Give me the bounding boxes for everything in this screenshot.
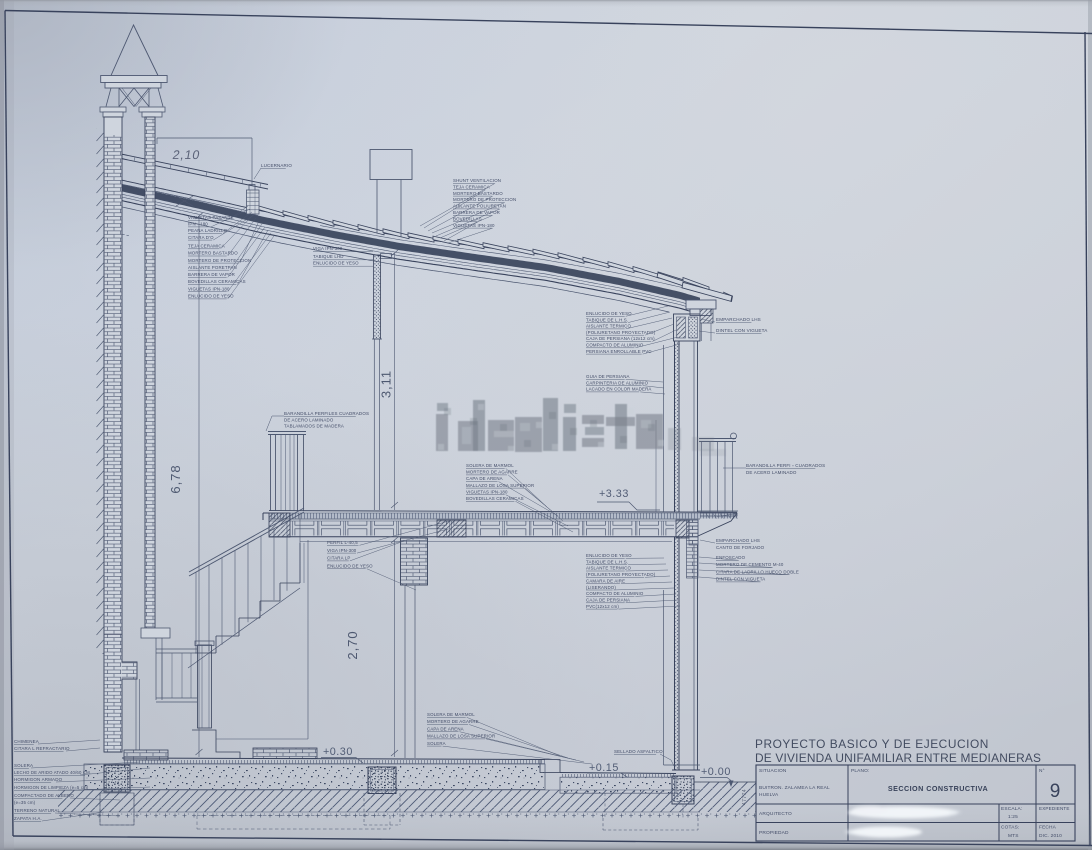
svg-text:COMPACTO DE ALUMINIO: COMPACTO DE ALUMINIO [586,591,644,596]
svg-text:2,10: 2,10 [171,148,201,162]
svg-text:3,11: 3,11 [379,370,394,398]
svg-text:MORTERO BASTARDO: MORTERO BASTARDO [453,191,503,196]
svg-text:TABLAMADOS DE MADERA: TABLAMADOS DE MADERA [284,424,344,429]
svg-text:BUITRON. ZALAMEA LA REAL: BUITRON. ZALAMEA LA REAL [759,785,830,791]
svg-text:47774: 47774 [742,789,748,805]
svg-text:SELLADO ASFALTICO: SELLADO ASFALTICO [614,749,663,754]
svg-text:BARRERA DE VAPOR: BARRERA DE VAPOR [188,272,235,277]
svg-text:VIGA IPN-300: VIGA IPN-300 [327,548,357,553]
svg-text:VIGUETAS IPN-180: VIGUETAS IPN-180 [188,286,230,291]
svg-text:VIGUETAS PASANTE: VIGUETAS PASANTE [188,215,234,220]
svg-text:PEANA LADRILLO: PEANA LADRILLO [188,228,228,233]
svg-text:HUELVA: HUELVA [759,792,779,798]
svg-text:EXPEDIENTE: EXPEDIENTE [1039,806,1070,811]
svg-text:DINTEL CON VIGUETA: DINTEL CON VIGUETA [716,328,768,333]
svg-text:(POLIURETANO PROYECTADO): (POLIURETANO PROYECTADO) [586,572,656,577]
svg-text:GUIA DE PERSIANA: GUIA DE PERSIANA [586,374,630,379]
svg-text:N°: N° [1039,768,1045,774]
svg-text:(e=35 cm): (e=35 cm) [14,800,36,805]
svg-text:BARANDILLA PERFI ▫ CUADRADOS: BARANDILLA PERFI ▫ CUADRADOS [746,463,825,468]
svg-text:TABIQUE DE L.H.S.: TABIQUE DE L.H.S. [586,559,628,564]
svg-text:MORTERO DE AGARRE: MORTERO DE AGARRE [466,470,518,475]
svg-text:CAPA DE ARENA: CAPA DE ARENA [427,726,464,731]
svg-text:SECCION CONSTRUCTIVA: SECCION CONSTRUCTIVA [888,784,988,793]
svg-text:VIGUETAS IPN-180: VIGUETAS IPN-180 [453,223,495,228]
svg-text:BARANDILLA PERFILES CUADRADOS: BARANDILLA PERFILES CUADRADOS [284,411,369,416]
svg-text:PLANO:: PLANO: [851,768,870,774]
svg-text:(LISERANDO): (LISERANDO) [586,585,616,590]
svg-text:LECHO DE ARIDO ATADO 40/60 CM.: LECHO DE ARIDO ATADO 40/60 CM. [14,770,91,775]
svg-text:TEJA CERAMICA: TEJA CERAMICA [188,244,225,249]
svg-text:AISLANTE TERMICO: AISLANTE TERMICO [586,566,631,571]
svg-text:COMPACTADO DE ALBERO: COMPACTADO DE ALBERO [14,793,74,798]
svg-text:CAJA DE PERSIANA (12x12 cm): CAJA DE PERSIANA (12x12 cm) [586,336,655,341]
svg-text:BOVEDILLAS CERAMICAS: BOVEDILLAS CERAMICAS [188,279,246,284]
svg-text:+3.33: +3.33 [599,488,629,500]
svg-text:CITARA D'O: CITARA D'O [188,235,214,240]
svg-text:COTAS:: COTAS: [1001,825,1019,831]
svg-text:ARQUITECTO: ARQUITECTO [759,811,792,817]
svg-text:MORTERO BASTARDO: MORTERO BASTARDO [188,251,238,256]
svg-text:ENLUCIDO DE YESO: ENLUCIDO DE YESO [586,311,632,316]
svg-text:+0.30: +0.30 [323,746,353,758]
svg-text:CAMARA DE AIRE: CAMARA DE AIRE [586,578,625,583]
svg-text:HORMIGON DE LIMPIEZA (e=5 cm): HORMIGON DE LIMPIEZA (e=5 cm) [14,785,89,790]
svg-text:+0.15: +0.15 [589,762,619,774]
svg-text:ENLUCIDO DE YESO: ENLUCIDO DE YESO [327,563,373,568]
svg-text:SHUNT VENTILACION: SHUNT VENTILACION [453,178,501,183]
svg-text:SOLERA: SOLERA [14,763,33,768]
svg-text:HORMIGON ARMADO: HORMIGON ARMADO [14,777,63,782]
svg-text:DE ACERO LAMINADO: DE ACERO LAMINADO [284,418,334,423]
svg-text:VIGA IPN-300: VIGA IPN-300 [313,246,343,251]
svg-text:FECHA: FECHA [1039,825,1057,831]
svg-text:IPN - 180: IPN - 180 [188,222,208,227]
svg-text:ZAPATA H.A.: ZAPATA H.A. [14,816,42,821]
svg-text:CAJA DE PERSIANA: CAJA DE PERSIANA [586,598,630,603]
svg-text:PROYECTO BASICO Y DE EJECUCION: PROYECTO BASICO Y DE EJECUCION [755,737,989,751]
svg-text:ENLUCIDO DE YESO: ENLUCIDO DE YESO [313,261,359,266]
svg-text:COMPACTO DE ALUMINIO: COMPACTO DE ALUMINIO [586,343,644,348]
svg-text:ENFOSCADO: ENFOSCADO [716,555,746,560]
svg-text:LACADO EN COLOR MADERA: LACADO EN COLOR MADERA [586,387,652,392]
svg-text:TABIQUE LHD: TABIQUE LHD [313,254,344,259]
svg-text:6,78: 6,78 [168,464,183,493]
svg-text:AISLANTE TERMICO: AISLANTE TERMICO [586,324,631,329]
svg-text:AISLANTE PORETPAN: AISLANTE PORETPAN [188,265,237,270]
svg-text:(POLIURETANO PROYECTADO): (POLIURETANO PROYECTADO) [586,330,656,335]
svg-text:CITARA LP: CITARA LP [327,556,350,561]
svg-text:SOLERA DE MARMOL: SOLERA DE MARMOL [427,712,475,717]
svg-text:SOLERA: SOLERA [427,741,446,746]
svg-text:MORTERO DE AGARRE: MORTERO DE AGARRE [427,719,479,724]
svg-text:BOVEDILLAS: BOVEDILLAS [453,216,482,221]
svg-text:PROPIEDAD: PROPIEDAD [759,830,789,836]
svg-text:EMPARCHADO LHS: EMPARCHADO LHS [716,538,760,543]
svg-text:9: 9 [1050,781,1061,802]
svg-text:TABIQUE DE L.H.S.: TABIQUE DE L.H.S. [586,317,628,322]
svg-text:BARRERA DE VAPOR: BARRERA DE VAPOR [453,210,500,215]
svg-text:MORTERO DE PROTECCION: MORTERO DE PROTECCION [453,197,516,202]
svg-text:BOVEDILLAS CERAMICAS: BOVEDILLAS CERAMICAS [466,496,524,501]
svg-text:DE ACERO LAMINADO: DE ACERO LAMINADO [746,470,797,475]
svg-text:+0.00: +0.00 [701,766,731,778]
svg-text:EMPARCHADO LHS: EMPARCHADO LHS [716,317,761,322]
svg-text:SITUACION: SITUACION [759,768,787,774]
svg-text:DIC. 2010: DIC. 2010 [1039,833,1062,839]
svg-text:PERSIANA ENROLLABLE PVC: PERSIANA ENROLLABLE PVC [586,349,652,354]
svg-text:ENLUCIDO DE YESO: ENLUCIDO DE YESO [586,553,632,558]
svg-text:CARPINTERIA DE ALUMINIO: CARPINTERIA DE ALUMINIO [586,380,649,385]
svg-text:CITARA DE LADRILLO HUECO DOBLE: CITARA DE LADRILLO HUECO DOBLE [716,569,799,574]
svg-text:VIGUETAS IPN-180: VIGUETAS IPN-180 [466,489,508,494]
svg-text:2,70: 2,70 [345,630,360,659]
svg-text:CAPA DE ARENA: CAPA DE ARENA [466,476,503,481]
svg-text:TEJA CERAMICA: TEJA CERAMICA [453,184,490,189]
svg-text:CITARA L REFRACTARIO: CITARA L REFRACTARIO [14,746,70,751]
svg-text:CHIMENEA: CHIMENEA [14,739,39,744]
svg-text:LUCERNARIO: LUCERNARIO [261,163,292,168]
svg-text:ESCALA:: ESCALA: [1001,806,1022,812]
svg-text:MALLAZO DE LOSA SUPERIOR: MALLAZO DE LOSA SUPERIOR [466,483,534,488]
svg-text:AISLANTE POLIURETAN: AISLANTE POLIURETAN [453,204,506,209]
svg-text:SOLERA DE MARMOL: SOLERA DE MARMOL [466,463,514,468]
svg-text:DE VIVIENDA UNIFAMILIAR ENTRE: DE VIVIENDA UNIFAMILIAR ENTRE MEDIANERAS [755,751,1041,765]
svg-text:1:25: 1:25 [1008,814,1018,820]
svg-text:ENLUCIDO DE YESO: ENLUCIDO DE YESO [188,294,234,299]
svg-text:MALLAZO DE LOSA SUPERIOR: MALLAZO DE LOSA SUPERIOR [427,734,495,739]
svg-text:TERRENO NATURAL: TERRENO NATURAL [14,808,61,813]
svg-text:PERFIL L-40,5: PERFIL L-40,5 [327,540,358,545]
svg-text:MTS: MTS [1008,833,1019,839]
svg-text:PVC(12x12 cm): PVC(12x12 cm) [586,604,619,609]
svg-text:CANTO DE FORJADO: CANTO DE FORJADO [716,545,765,550]
